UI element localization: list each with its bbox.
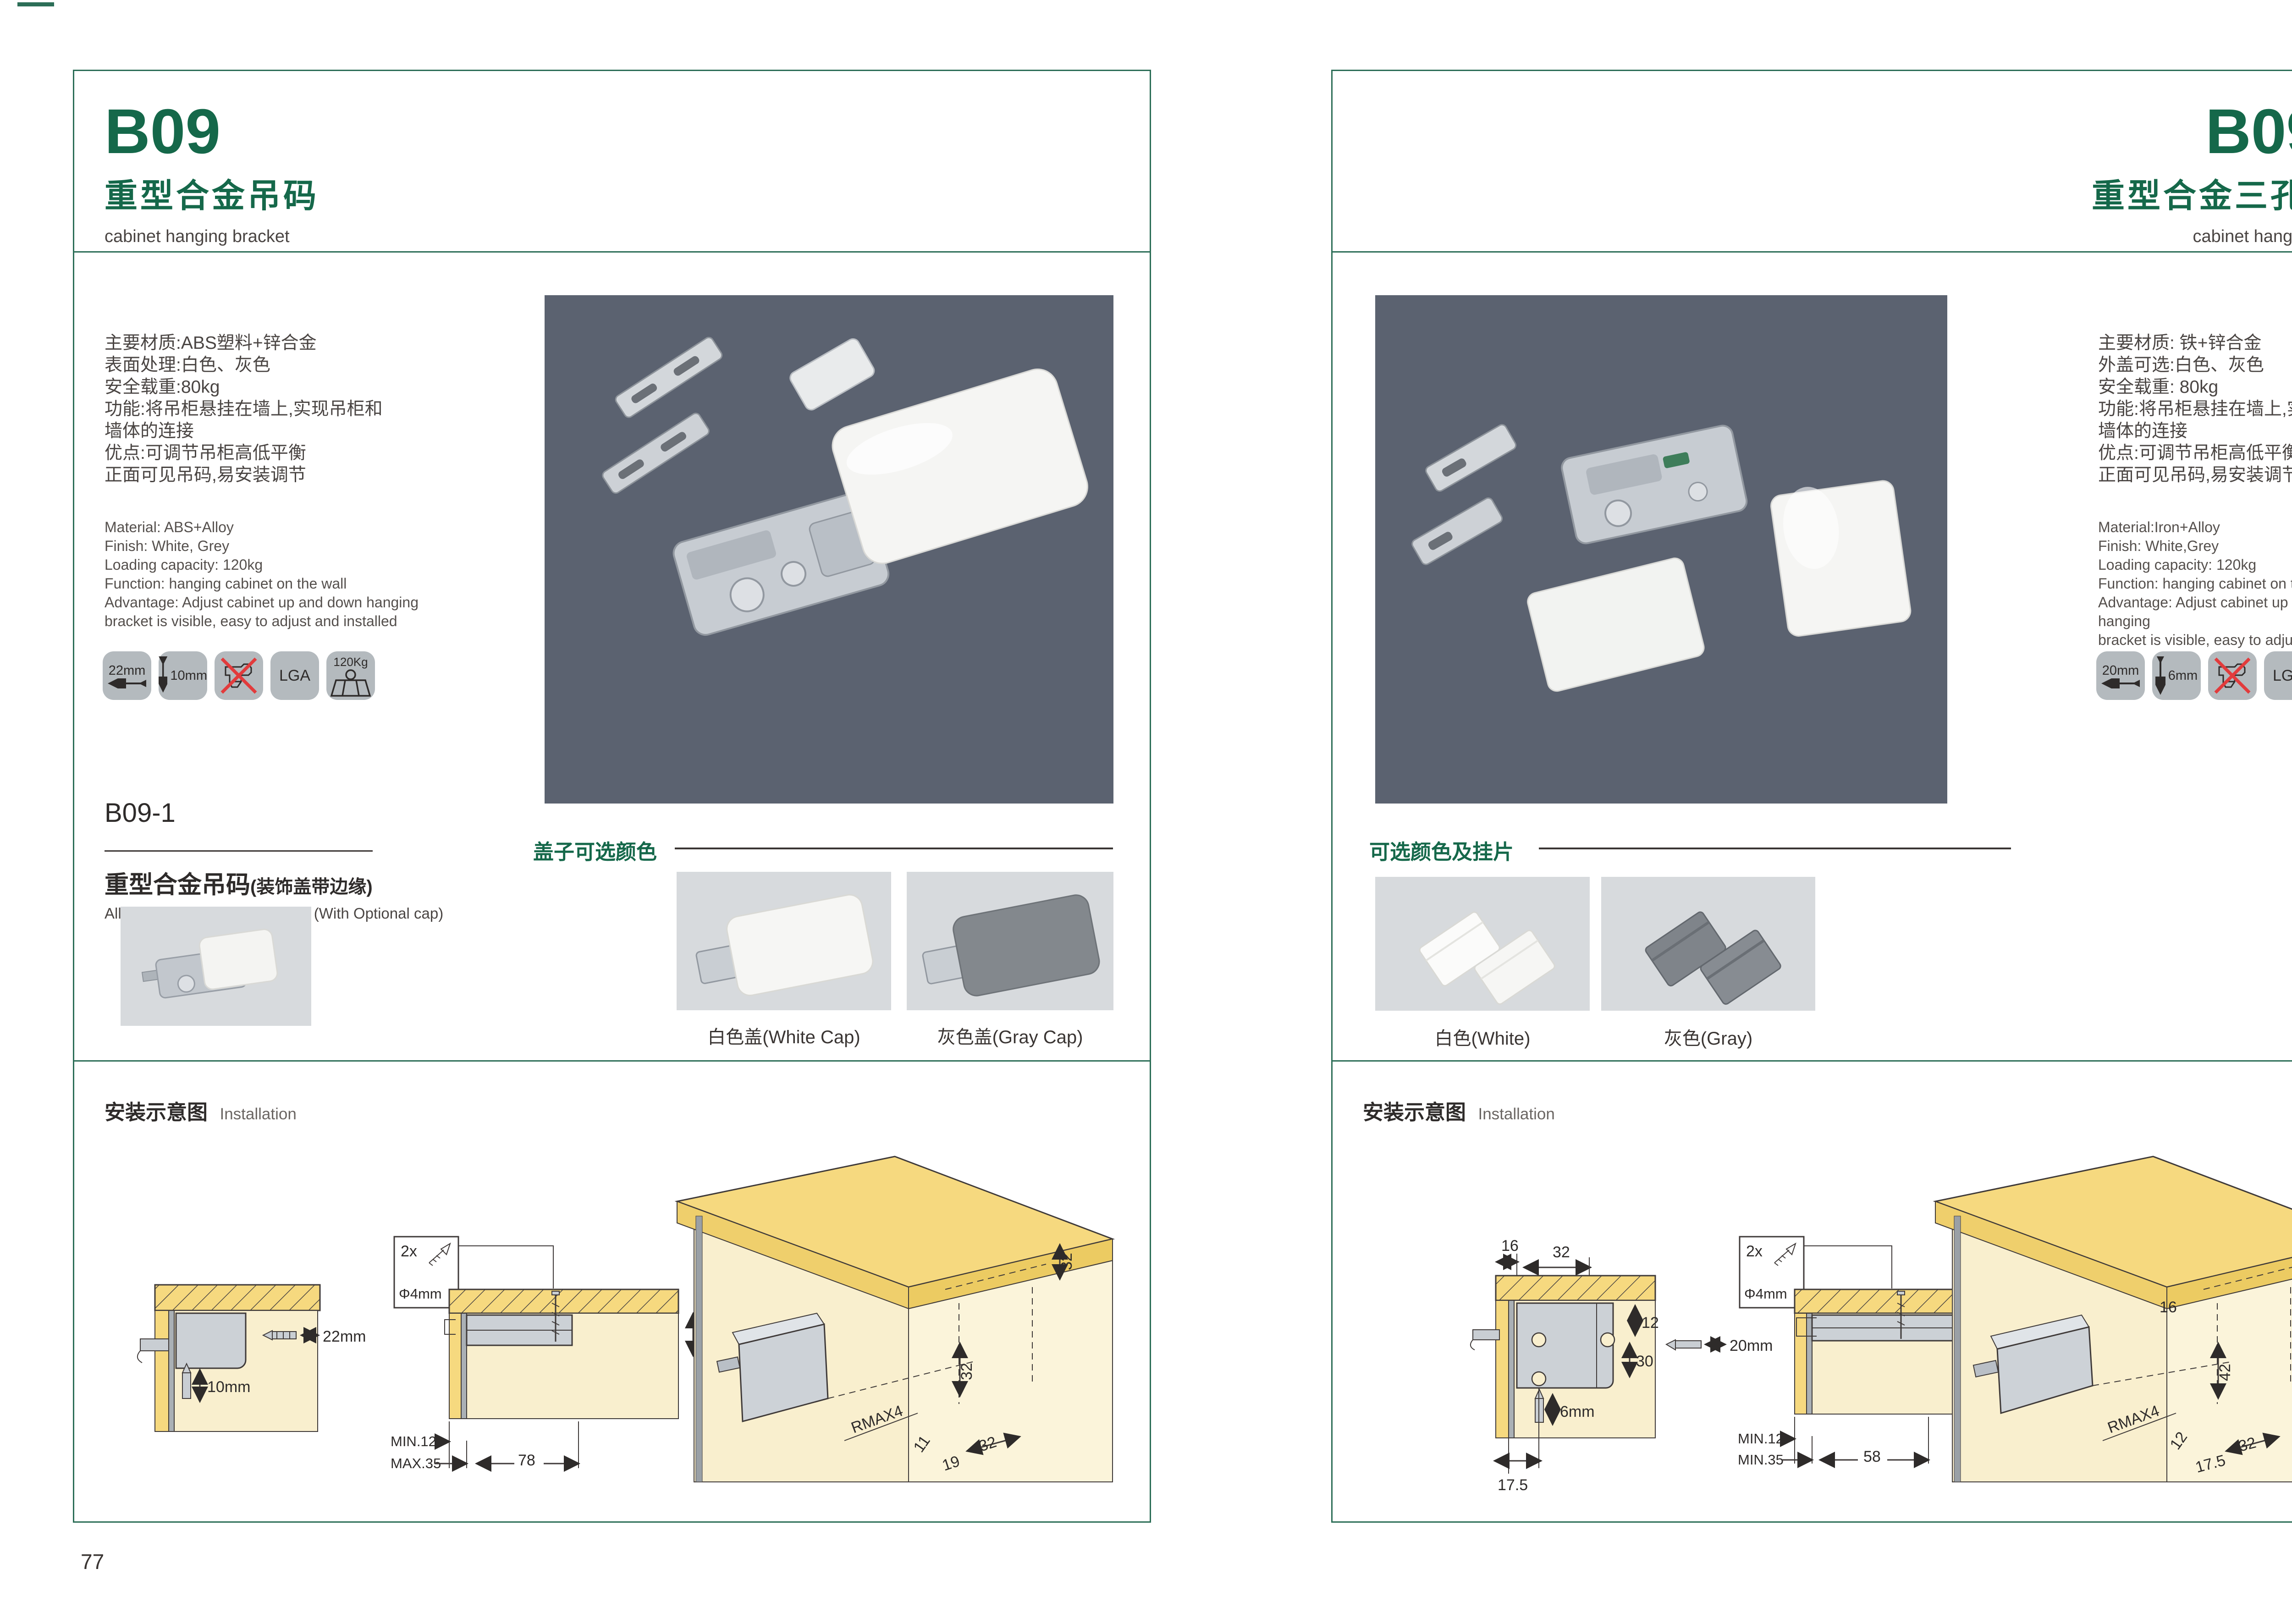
- feature-icons: 20mm 6mm: [2096, 651, 2292, 700]
- load-capacity-icon: 120Kg: [326, 651, 375, 700]
- spec-cn-line: 安全载重:80kg: [105, 376, 554, 398]
- dim-label: 42: [2216, 1364, 2234, 1381]
- spec-en-line: Function: hanging cabinet on the wall: [2098, 574, 2292, 593]
- no-drill-icon: [215, 651, 263, 700]
- gray-hanger-caption: 灰色(Gray): [1601, 1024, 1815, 1050]
- spec-en-line: Function: hanging cabinet on the wall: [105, 574, 563, 593]
- dim-label: 12: [1642, 1314, 1659, 1332]
- spec-cn-line: 优点:可调节吊柜高低平衡: [2098, 442, 2292, 464]
- spec-en-line: Material: ABS+Alloy: [105, 518, 563, 537]
- spec-en-line: Finish: White, Grey: [105, 537, 563, 556]
- dim-label: 16: [2160, 1299, 2177, 1316]
- header-divider: [1333, 251, 2292, 253]
- header-divider: [74, 251, 1150, 253]
- page-right-card: B09-3 重型合金三孔吊码 cabinet hanging bracket: [1331, 70, 2292, 1523]
- dim-label: 6mm: [1560, 1403, 1595, 1420]
- installation-heading-cn: 安装示意图: [1363, 1096, 1466, 1125]
- product-title-cn: 重型合金吊码: [105, 169, 319, 217]
- white-cap-photo: [677, 872, 891, 1010]
- product-code: B09: [105, 99, 319, 165]
- screw-qty-label: 2x: [1746, 1243, 1763, 1260]
- screw-dia-label: Φ4mm: [1744, 1286, 1787, 1302]
- registration-mark: [17, 2, 54, 6]
- spec-cn-line: 正面可见吊码,易安装调节: [105, 464, 554, 486]
- height-value: 6mm: [2168, 668, 2198, 683]
- dim-label: 20mm: [1730, 1337, 1773, 1354]
- gray-hanger-photo: [1601, 877, 1815, 1011]
- page-number-left: 77: [81, 1549, 104, 1574]
- dim-label: 17.5: [1498, 1476, 1528, 1494]
- product-title-cn: 重型合金三孔吊码: [2092, 169, 2292, 217]
- product-photo-illustration: [1375, 295, 1947, 804]
- dim-label: MIN.12: [391, 1433, 436, 1449]
- height-dimension-icon: 10mm: [159, 651, 207, 700]
- installation-heading-en: Installation: [1478, 1105, 1554, 1123]
- gray-cap-caption: 灰色盖(Gray Cap): [907, 1022, 1113, 1049]
- spec-cn-line: 表面处理:白色、灰色: [105, 354, 554, 376]
- width-dimension-icon: 22mm: [103, 651, 151, 700]
- spec-en: Material:Iron+Alloy Finish: White,Grey L…: [2098, 518, 2292, 650]
- installation-diagrams: 22mm 10mm 2x Φ4mm: [102, 1147, 1119, 1505]
- sub-title-cn: 重型合金吊码: [105, 871, 250, 898]
- product-photo: [545, 295, 1113, 804]
- spec-cn-line: 功能:将吊柜悬挂在墙上,实现吊柜和: [2098, 398, 2292, 420]
- spec-en-line: Finish: White,Grey: [2098, 537, 2292, 556]
- spec-cn-line: 墙体的连接: [2098, 420, 2292, 442]
- spec-en-line: bracket is visible, easy to adjust and i…: [2098, 631, 2292, 650]
- dim-label: 30: [1636, 1353, 1653, 1370]
- installation-heading: 安装示意图 Installation: [1363, 1096, 1555, 1125]
- cert-label: LGA: [279, 667, 310, 685]
- spec-en-line: Loading capacity: 120kg: [2098, 556, 2292, 574]
- no-drill-icon: [2208, 651, 2257, 700]
- white-hanger-caption: 白色(White): [1375, 1024, 1590, 1050]
- sub-section-underline: [105, 850, 373, 852]
- product-title-en: cabinet hanging bracket: [105, 227, 319, 247]
- dim-label: 10mm: [207, 1378, 250, 1396]
- width-value: 20mm: [2102, 663, 2139, 678]
- install-diagram-section-a: 16 32 12 30: [1471, 1237, 1773, 1494]
- product-title-en: cabinet hanging bracket: [2092, 227, 2292, 247]
- sub-title-cn-suffix: (装饰盖带边缘): [250, 877, 373, 897]
- page-right-header: B09-3 重型合金三孔吊码 cabinet hanging bracket: [2092, 99, 2292, 247]
- install-diagram-perspective: 32 32 RMAX4 11 19 32: [677, 1156, 1113, 1482]
- installation-diagrams: 16 32 12 30: [1360, 1147, 2292, 1505]
- lga-cert-icon: LGA: [270, 651, 319, 700]
- product-code: B09-3: [2092, 99, 2292, 165]
- product-photo-illustration: [545, 295, 1113, 804]
- dim-label: 58: [1863, 1448, 1881, 1465]
- lga-cert-icon: LGA: [2264, 651, 2292, 700]
- installation-heading-cn: 安装示意图: [105, 1096, 208, 1125]
- dim-label: 32: [1058, 1253, 1075, 1270]
- white-cap-caption: 白色盖(White Cap): [677, 1022, 891, 1049]
- caps-section-heading: 盖子可选颜色: [533, 835, 657, 865]
- spec-en-line: Advantage: Adjust cabinet up and down ha…: [2098, 593, 2292, 631]
- dim-label: 22mm: [323, 1328, 366, 1345]
- section-divider: [1333, 1060, 2292, 1062]
- dim-label: MIN.35: [1738, 1452, 1784, 1468]
- horizontal-arrow-icon: [2101, 678, 2140, 688]
- spec-cn-line: 外盖可选:白色、灰色: [2098, 354, 2292, 376]
- spec-cn: 主要材质:ABS塑料+锌合金 表面处理:白色、灰色 安全载重:80kg 功能:将…: [105, 332, 554, 486]
- spec-cn-line: 正面可见吊码,易安装调节: [2098, 464, 2292, 486]
- height-dimension-icon: 6mm: [2152, 651, 2201, 700]
- spec-en-line: Material:Iron+Alloy: [2098, 518, 2292, 537]
- section-divider: [74, 1060, 1150, 1062]
- spec-cn-line: 优点:可调节吊柜高低平衡: [105, 442, 554, 464]
- installation-heading: 安装示意图 Installation: [105, 1096, 297, 1125]
- gray-cap-photo: [907, 872, 1113, 1010]
- weight-icon: [329, 669, 373, 698]
- caps-section-line: [675, 848, 1113, 849]
- dim-label: MIN.12: [1738, 1431, 1784, 1447]
- sub-product-photo: [121, 907, 311, 1026]
- vertical-arrow-icon: [2155, 656, 2165, 695]
- dim-label: 78: [518, 1452, 535, 1469]
- white-hanger-photo: [1375, 877, 1590, 1011]
- spec-cn-line: 主要材质: 铁+锌合金: [2098, 332, 2292, 354]
- cert-label: LGA: [2273, 667, 2292, 685]
- spec-cn-line: 主要材质:ABS塑料+锌合金: [105, 332, 554, 354]
- dim-label: 32: [958, 1363, 975, 1380]
- screw-qty-label: 2x: [401, 1243, 417, 1260]
- page-left-card: B09 重型合金吊码 cabinet hanging bracket 主要材质:…: [73, 70, 1151, 1523]
- spec-cn: 主要材质: 铁+锌合金 外盖可选:白色、灰色 安全载重: 80kg 功能:将吊柜…: [2098, 332, 2292, 486]
- spec-cn-line: 安全载重: 80kg: [2098, 376, 2292, 398]
- spec-en-line: bracket is visible, easy to adjust and i…: [105, 612, 563, 631]
- feature-icons: 22mm 10mm: [103, 651, 375, 700]
- caps-section-line: [1539, 848, 2011, 849]
- height-value: 10mm: [170, 668, 207, 683]
- caps-section-heading: 可选颜色及挂片: [1369, 835, 1514, 865]
- install-diagram-perspective: 12 16 42 RMAX4 12 17.5 32: [1935, 1156, 2292, 1482]
- dim-label: 16: [1501, 1237, 1519, 1255]
- product-photo: [1375, 295, 1947, 804]
- vertical-arrow-icon: [159, 656, 167, 695]
- install-diagram-section-b: 2x Φ4mm 13: [391, 1237, 709, 1471]
- install-diagram-section-a: 22mm 10mm: [138, 1285, 366, 1431]
- horizontal-arrow-icon: [108, 678, 146, 688]
- spec-en-line: Advantage: Adjust cabinet up and down ha…: [105, 593, 563, 612]
- spec-en-line: Loading capacity: 120kg: [105, 556, 563, 574]
- catalog-sheet: B09 重型合金吊码 cabinet hanging bracket 主要材质:…: [0, 0, 2292, 1624]
- load-value: 120Kg: [333, 655, 368, 669]
- sub-section-code: B09-1: [105, 798, 176, 828]
- width-value: 22mm: [109, 663, 146, 678]
- spec-en: Material: ABS+Alloy Finish: White, Grey …: [105, 518, 563, 631]
- installation-heading-en: Installation: [220, 1105, 296, 1123]
- spec-cn-line: 功能:将吊柜悬挂在墙上,实现吊柜和: [105, 398, 554, 420]
- dim-label: MAX.35: [391, 1455, 441, 1471]
- spec-cn-line: 墙体的连接: [105, 420, 554, 442]
- page-left-header: B09 重型合金吊码 cabinet hanging bracket: [105, 99, 319, 247]
- dim-label: 32: [1553, 1244, 1570, 1261]
- width-dimension-icon: 20mm: [2096, 651, 2145, 700]
- screw-dia-label: Φ4mm: [399, 1286, 442, 1302]
